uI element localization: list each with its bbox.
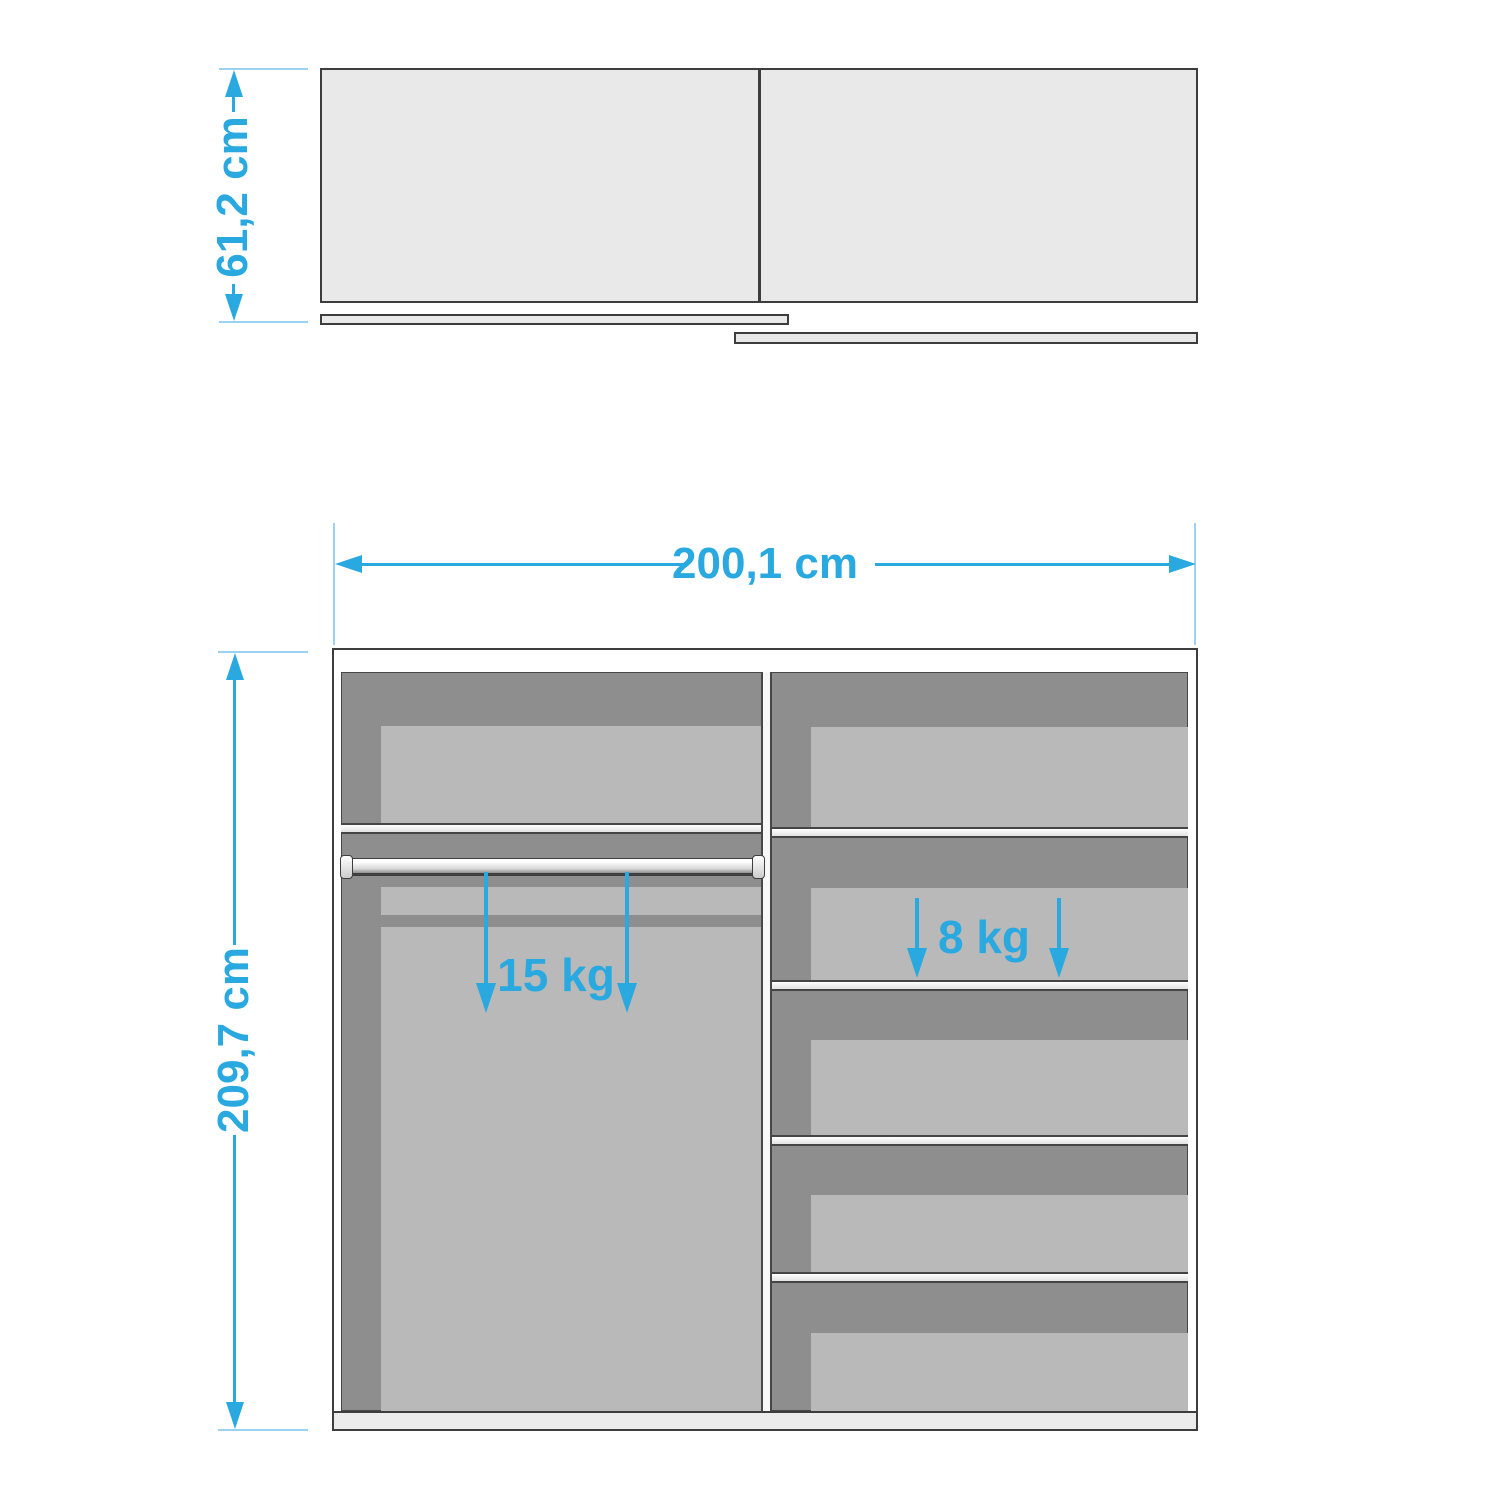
shelf-load-arrow-shaft-right (1057, 898, 1061, 952)
left-column-shelf (341, 823, 762, 834)
shelf-load-label: 8 kg (914, 912, 1054, 962)
left-rail-section-panel (381, 887, 762, 915)
height-dim-shaft-top (233, 677, 236, 945)
hanging-rail-cap-right (752, 855, 765, 879)
cabinet-centre-divider (761, 672, 772, 1411)
hanging-rail (352, 858, 755, 876)
height-dim-tick-bottom (218, 1429, 308, 1431)
sliding-rail-left (320, 314, 789, 325)
rail-load-label: 15 kg (476, 950, 636, 1000)
right-section-3-panel (811, 1040, 1188, 1135)
depth-dim-arrow-down-icon (225, 294, 243, 321)
right-section-5-panel (811, 1333, 1188, 1411)
width-dimension-label: 200,1 cm (665, 541, 865, 587)
width-dim-line-left (358, 563, 688, 566)
right-section-1-panel (811, 727, 1188, 827)
width-dim-extension-right (1194, 523, 1196, 645)
depth-dim-tick-bottom (219, 321, 308, 323)
width-dim-arrow-right-icon (1169, 555, 1196, 573)
cabinet-base-panel (334, 1411, 1196, 1429)
height-dimension-label: 209,7 cm (211, 930, 257, 1150)
width-dim-extension-left (333, 523, 335, 645)
plan-door-divider (758, 70, 761, 301)
right-section-4-panel (811, 1195, 1188, 1272)
height-dim-arrow-down-icon (226, 1402, 244, 1429)
wardrobe-dimension-diagram: 61,2 cm 200,1 cm 209,7 cm 15 kg (0, 0, 1500, 1500)
hanging-rail-cap-left (340, 855, 353, 879)
width-dim-line-right (875, 563, 1172, 566)
left-top-section-panel (381, 726, 762, 823)
right-column-shelf-1 (771, 827, 1188, 838)
right-column-shelf-4 (771, 1272, 1188, 1283)
right-column-shelf-3 (771, 1135, 1188, 1146)
right-column-shelf-2 (771, 980, 1188, 991)
height-dim-arrow-up-icon (226, 653, 244, 680)
depth-dimension-label: 61,2 cm (210, 87, 256, 307)
sliding-rail-right (734, 332, 1198, 344)
height-dim-shaft-bottom (233, 1135, 236, 1405)
